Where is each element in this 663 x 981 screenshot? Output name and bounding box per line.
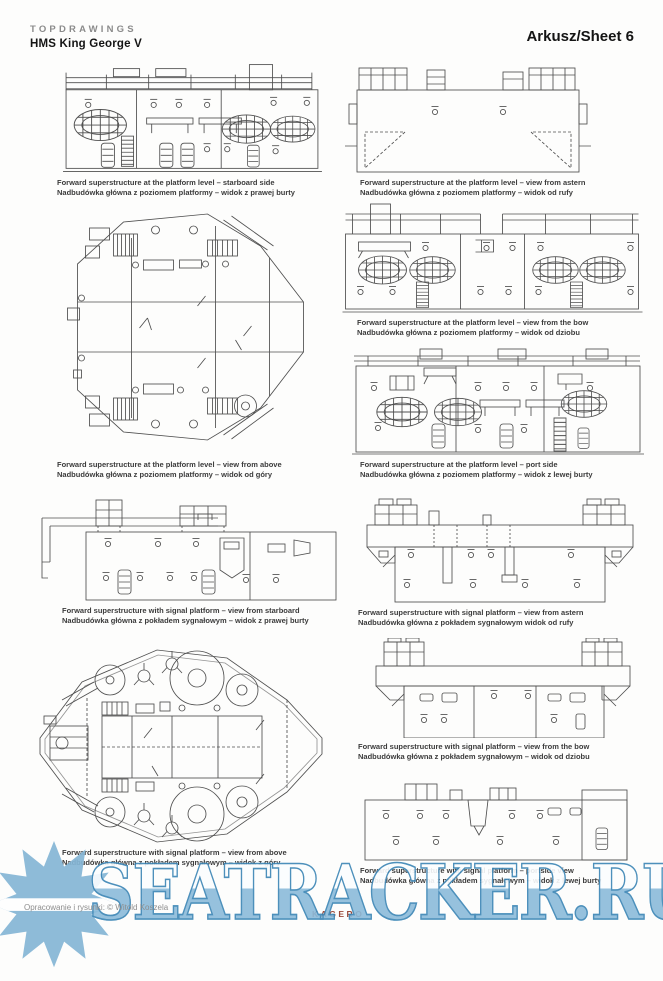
- caption-pl: Nadbudówka główna z poziomem platformy –…: [357, 328, 588, 338]
- caption-en: Forward superstructure with signal platf…: [358, 742, 590, 752]
- figure-caption-signal-starboard: Forward superstructure with signal platf…: [62, 606, 309, 626]
- figure-caption-signal-port: Forward superstructure with signal platf…: [360, 866, 601, 886]
- figure-art-signal-above: [32, 638, 327, 848]
- figure-caption-signal-above: Forward superstructure with signal platf…: [62, 848, 287, 868]
- page: { "header": { "brand": "TOPDRAWINGS", "s…: [0, 0, 663, 947]
- caption-pl: Nadbudówka główna z poziomem platformy –…: [57, 470, 282, 480]
- caption-en: Forward superstructure with signal platf…: [62, 606, 309, 616]
- caption-pl: Nadbudówka główna z pokładem sygnałowym …: [358, 618, 583, 628]
- figure-caption-platform-starboard: Forward superstructure at the platform l…: [57, 178, 295, 198]
- caption-pl: Nadbudówka główna z pokładem sygnałowym …: [360, 876, 601, 886]
- caption-pl: Nadbudówka główna z poziomem platformy –…: [360, 188, 585, 198]
- figure-art-signal-astern: [355, 497, 645, 605]
- caption-pl: Nadbudówka główna z poziomem platformy –…: [57, 188, 295, 198]
- publisher-series-logo: TOPDRAWINGS: [30, 24, 137, 35]
- figure-art-platform-astern: [343, 60, 601, 175]
- figure-caption-platform-above: Forward superstructure at the platform l…: [57, 460, 282, 480]
- credit-line: Opracowanie i rysunki: © Witold Koszela: [24, 903, 168, 912]
- caption-en: Forward superstructure at the platform l…: [360, 178, 585, 188]
- caption-pl: Nadbudówka główna z pokładem sygnałowym …: [62, 616, 309, 626]
- figure-art-signal-port: [350, 778, 642, 863]
- figure-caption-platform-astern: Forward superstructure at the platform l…: [360, 178, 585, 198]
- sheet-number: Arkusz/Sheet 6: [526, 28, 634, 45]
- caption-en: Forward superstructure with signal platf…: [360, 866, 601, 876]
- caption-en: Forward superstructure at the platform l…: [360, 460, 593, 470]
- figure-art-platform-port: [348, 348, 646, 456]
- caption-en: Forward superstructure with signal platf…: [358, 608, 583, 618]
- figure-caption-platform-bow: Forward superstructure at the platform l…: [357, 318, 588, 338]
- caption-en: Forward superstructure at the platform l…: [57, 460, 282, 470]
- figure-art-signal-bow: [362, 638, 647, 738]
- figure-caption-platform-port: Forward superstructure at the platform l…: [360, 460, 593, 480]
- figure-caption-signal-bow: Forward superstructure with signal platf…: [358, 742, 590, 762]
- caption-en: Forward superstructure at the platform l…: [57, 178, 295, 188]
- page-title: HMS King George V: [30, 38, 142, 50]
- figure-art-signal-starboard: [28, 498, 343, 603]
- figure-art-platform-starboard: [58, 62, 330, 176]
- publisher-logo: KAGERO: [312, 909, 364, 919]
- caption-pl: Nadbudówka główna z pokładem sygnałowym …: [358, 752, 590, 762]
- caption-en: Forward superstructure at the platform l…: [357, 318, 588, 328]
- caption-en: Forward superstructure with signal platf…: [62, 848, 287, 858]
- caption-pl: Nadbudówka główna z pokładem sygnałowym …: [62, 858, 287, 868]
- figure-caption-signal-astern: Forward superstructure with signal platf…: [358, 608, 583, 628]
- caption-pl: Nadbudówka główna z poziomem platformy –…: [360, 470, 593, 480]
- figure-art-platform-above: [55, 200, 331, 455]
- figure-art-platform-bow: [340, 202, 646, 314]
